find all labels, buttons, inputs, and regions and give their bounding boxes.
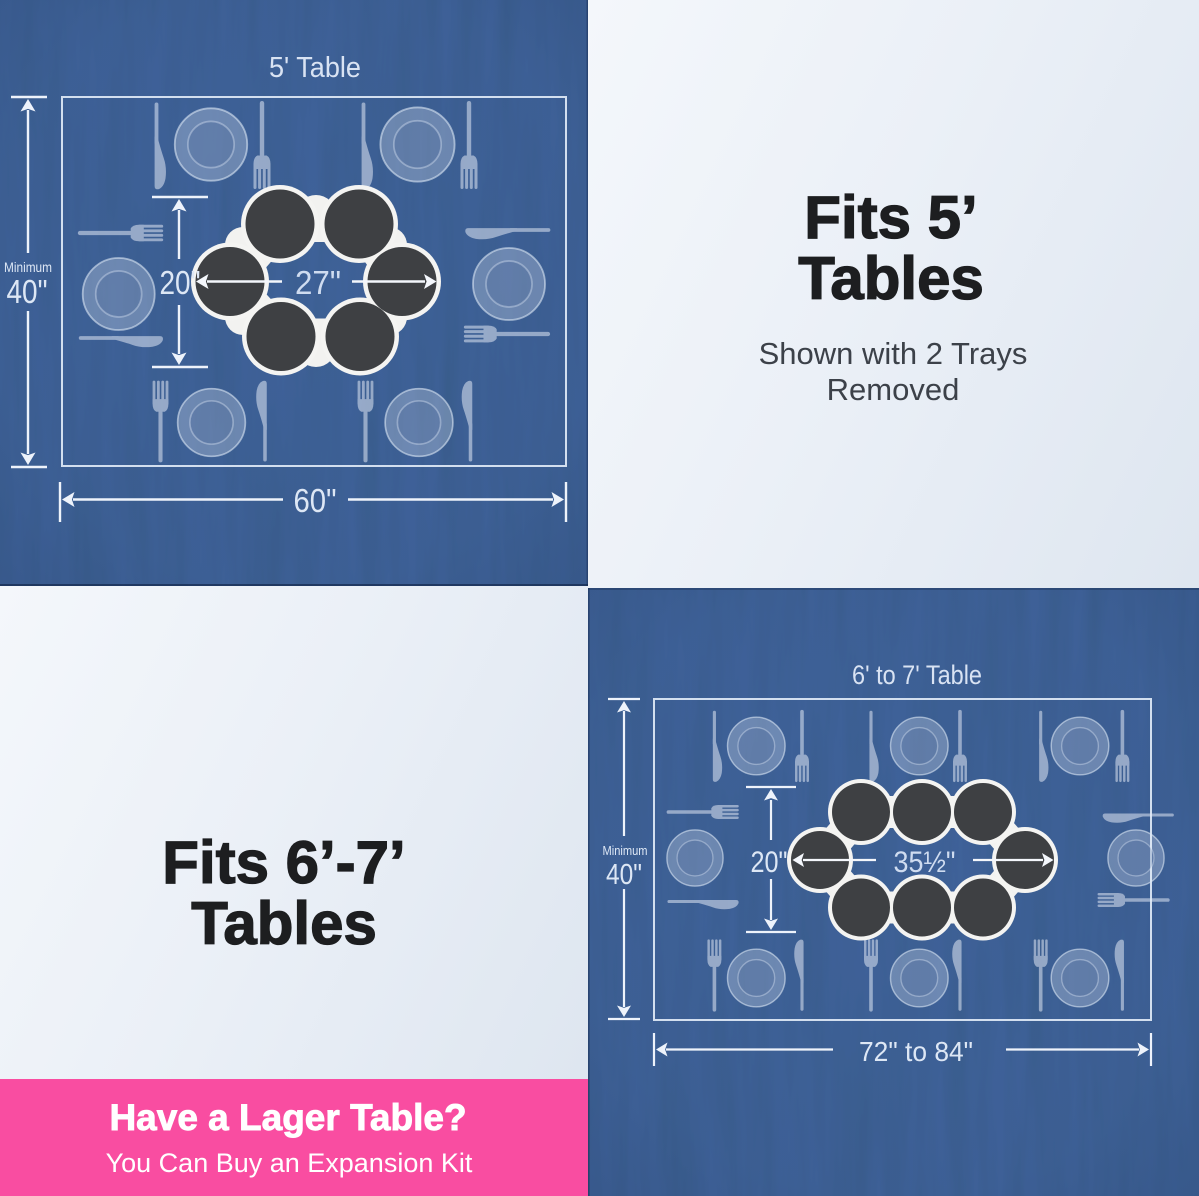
- svg-text:27": 27": [295, 264, 341, 301]
- svg-text:40": 40": [606, 859, 642, 891]
- svg-text:6' to 7' Table: 6' to 7' Table: [852, 660, 982, 690]
- svg-text:40": 40": [7, 273, 48, 310]
- svg-text:60": 60": [294, 482, 337, 519]
- svg-text:20": 20": [751, 846, 788, 879]
- svg-text:Minimum: Minimum: [603, 843, 648, 858]
- svg-text:20": 20": [160, 264, 201, 301]
- svg-text:35½": 35½": [894, 846, 956, 879]
- svg-text:72" to 84": 72" to 84": [859, 1036, 973, 1067]
- svg-text:5' Table: 5' Table: [269, 52, 361, 84]
